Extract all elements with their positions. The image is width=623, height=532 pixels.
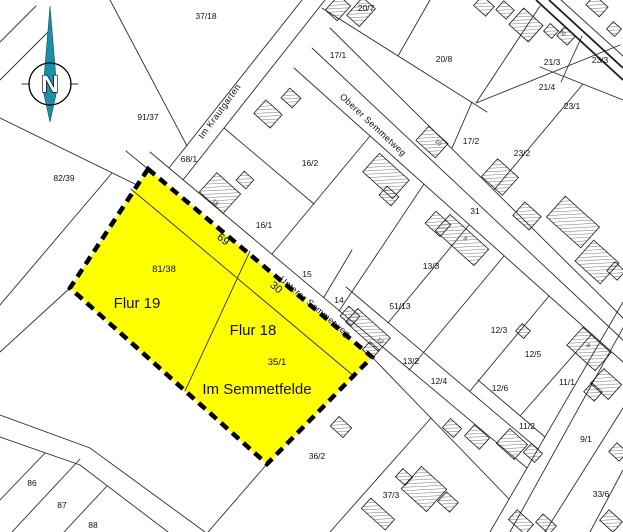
parcel-label-87: 87	[57, 500, 67, 510]
parcel-label-16-2: 16/2	[302, 158, 319, 168]
parcel-label-17-2: 17/2	[463, 136, 480, 146]
parcel-label-15: 15	[302, 269, 312, 279]
parcel-label-12-5: 12/5	[525, 349, 542, 359]
parcel-label-91-37: 91/37	[137, 112, 159, 122]
cadastral-map: N 37/1820/717/120/821/323/321/423/191/37…	[0, 0, 623, 532]
area-label-flur-19: Flur 19	[114, 295, 161, 312]
parcel-label-37-18: 37/18	[195, 11, 217, 21]
parcel-label-35-1: 35/1	[268, 357, 287, 368]
parcel-label-11-1: 11/1	[559, 377, 575, 387]
parcel-label-21-4: 21/4	[539, 82, 556, 92]
parcel-label-33-6: 33/6	[593, 489, 610, 499]
parcel-label-20-8: 20/8	[436, 54, 453, 64]
parcel-label-68-1: 68/1	[181, 154, 198, 164]
parcel-label-81-38: 81/38	[152, 264, 176, 275]
parcel-label-20-7: 20/7	[358, 3, 375, 13]
parcel-label-37-3: 37/3	[383, 490, 400, 500]
parcel-label-12-3: 12/3	[491, 325, 508, 335]
parcel-label-13-3: 13/3	[423, 261, 440, 271]
parcel-label-14: 14	[334, 295, 344, 305]
area-label-flur-18: Flur 18	[230, 322, 277, 339]
compass-north-label: N	[41, 71, 58, 98]
parcel-label-88: 88	[88, 520, 98, 530]
parcel-label-13-2: 13/2	[403, 356, 420, 366]
parcel-label-23-2: 23/2	[514, 148, 531, 158]
parcel-label-11-2: 11/2	[519, 421, 535, 431]
parcel-label-21-3: 21/3	[544, 57, 561, 67]
parcel-label-23-1: 23/1	[564, 101, 581, 111]
parcel-label-9-1: 9/1	[580, 434, 592, 444]
map-canvas: N 37/1820/717/120/821/323/321/423/191/37…	[0, 0, 623, 532]
parcel-label-36-2: 36/2	[309, 451, 326, 461]
parcel-label-82-39: 82/39	[53, 173, 75, 183]
street-label-im-krautgarten: Im Krautgarten	[196, 82, 242, 141]
street-label-oberer-semmetweg: Oberer Semmetweg	[338, 92, 408, 159]
parcel-label-17-1: 17/1	[330, 50, 347, 60]
parcel-label-23-3: 23/3	[592, 55, 609, 65]
north-compass: N	[22, 6, 78, 122]
parcel-label-16-1: 16/1	[256, 220, 273, 230]
parcel-label-86: 86	[27, 478, 37, 488]
area-label-im-semmetfelde: Im Semmetfelde	[202, 381, 311, 398]
parcel-label-12-6: 12/6	[492, 383, 509, 393]
parcel-label-31: 31	[470, 206, 480, 216]
parcel-label-51-13: 51/13	[389, 301, 411, 311]
parcel-label-12-4: 12/4	[431, 376, 448, 386]
